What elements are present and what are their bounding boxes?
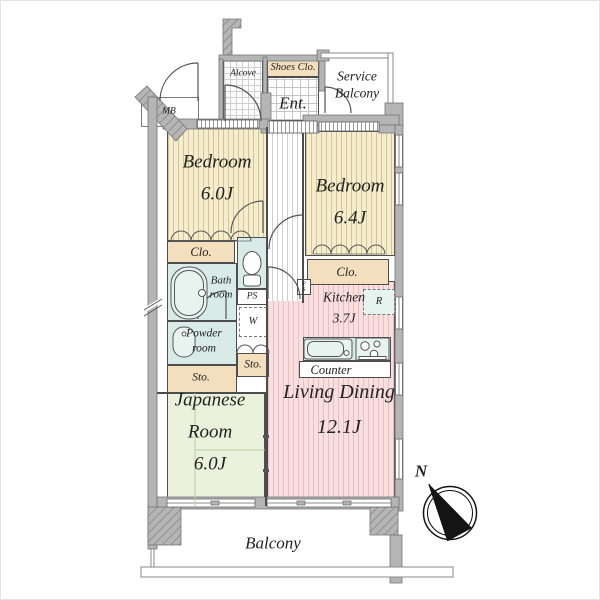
refrigerator-label: R <box>376 297 382 308</box>
washer-label: W <box>249 317 258 328</box>
shoes-closet-label: Shoes Clo. <box>271 63 316 74</box>
counter-label: Counter <box>311 364 352 377</box>
japanese-room-label-1: Japanese <box>175 391 246 410</box>
powder-room-label-1: Powder <box>186 328 222 340</box>
floor-plan: Alcove Shoes Clo. Ent. Service Balcony M… <box>0 0 600 600</box>
meter-box-label: MB <box>162 107 176 117</box>
living-dining-size-label: 12.1J <box>317 417 361 437</box>
bedroom2-name-label: Bedroom <box>316 177 385 196</box>
balcony-label: Balcony <box>245 535 301 552</box>
pipe-space-small-label: P S <box>297 279 311 295</box>
hallway-floor <box>267 133 303 301</box>
alcove-label: Alcove <box>230 69 256 79</box>
pipe-space-small-s: S <box>303 287 306 293</box>
compass-rose <box>424 484 477 541</box>
storage2-label: Sto. <box>244 359 262 371</box>
balcony-railing <box>141 549 453 577</box>
bathroom-label-1: Bath <box>211 276 232 287</box>
bathroom-label-2: room <box>210 290 233 301</box>
closet2-label: Clo. <box>336 266 357 279</box>
kitchen-size-label: 3.7J <box>333 311 356 325</box>
toilet-room-floor <box>237 237 267 289</box>
pipe-space-label: PS <box>247 292 258 302</box>
side-windows <box>396 135 403 479</box>
storage1-label: Sto. <box>192 372 210 384</box>
bedroom1-size-label: 6.0J <box>201 185 233 204</box>
japanese-room-label-2: Room <box>188 423 232 442</box>
kitchen-counter-unit <box>303 337 391 361</box>
entrance-label: Ent. <box>279 95 307 112</box>
powder-room-label-2: room <box>192 343 216 355</box>
service-balcony-label-1: Service <box>337 69 377 83</box>
compass-north-label: N <box>415 463 427 480</box>
closet1-label: Clo. <box>190 246 211 259</box>
japanese-room-label-3: 6.0J <box>194 455 226 474</box>
kitchen-name-label: Kitchen <box>323 290 365 304</box>
bedroom2-size-label: 6.4J <box>334 209 366 228</box>
wall-break-mark <box>144 297 162 316</box>
living-dining-name-label: Living Dining <box>283 382 395 402</box>
bedroom1-name-label: Bedroom <box>183 153 252 172</box>
service-balcony-label-2: Balcony <box>335 86 379 100</box>
